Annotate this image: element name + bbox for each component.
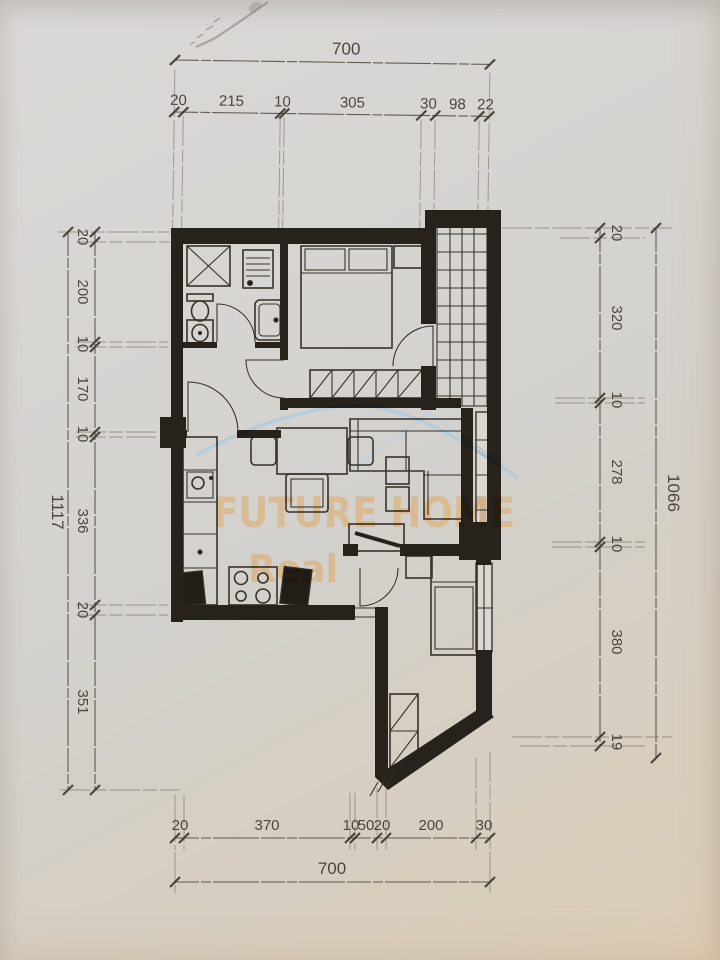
living-room-door xyxy=(188,382,238,432)
dim-label: 320 xyxy=(608,305,625,330)
balcony-tiles xyxy=(437,216,487,406)
dim-label: 305 xyxy=(340,94,365,111)
dim-label: 20 xyxy=(172,817,189,834)
dining-chair-right xyxy=(348,437,373,465)
dim-label: 20 xyxy=(608,225,625,242)
balcony-door xyxy=(393,326,433,366)
dim-label: 10 xyxy=(74,426,91,443)
dim-overall-label: 700 xyxy=(332,39,361,58)
dim-label: 336 xyxy=(74,508,91,533)
dim-label: 30 xyxy=(420,95,437,112)
scanned-floor-plan-photo: 700 20 215 10 305 30 98 22 1117 20 200 1… xyxy=(0,0,720,960)
pencil-scribble xyxy=(190,0,268,47)
dim-label: 351 xyxy=(74,689,91,714)
dim-overall-label: 1066 xyxy=(664,474,683,512)
dim-label: 215 xyxy=(219,93,244,110)
vanity-sink xyxy=(255,300,284,340)
dining-chair-left xyxy=(251,437,276,465)
bathroom-shower xyxy=(187,246,230,286)
dim-label: 10 xyxy=(608,392,625,409)
kitchen-sink xyxy=(187,472,213,498)
bedside-table xyxy=(406,556,432,578)
bedroom2-door xyxy=(360,568,398,606)
watermark-brand: FUTURE HOME xyxy=(213,488,515,537)
dim-label: 20 xyxy=(74,229,91,246)
dim-label: 19 xyxy=(608,734,625,751)
floor-plan-drawing: 700 20 215 10 305 30 98 22 1117 20 200 1… xyxy=(0,0,720,960)
bathroom-door xyxy=(217,304,255,342)
dim-overall-label: 1117 xyxy=(48,494,67,529)
dim-label: 380 xyxy=(608,629,625,654)
bedroom-door xyxy=(246,360,284,398)
dim-label: 30 xyxy=(476,817,493,834)
toilet xyxy=(187,294,213,321)
double-bed xyxy=(301,246,392,348)
dimension-chain-left: 1117 20 200 10 170 10 336 20 351 xyxy=(48,227,180,795)
dim-overall-label: 700 xyxy=(318,859,346,878)
dim-label: 10 xyxy=(608,536,625,553)
passage-threshold xyxy=(355,608,377,617)
dining-table xyxy=(277,428,347,474)
dimension-chain-right: 1066 20 320 10 278 10 380 19 xyxy=(502,223,683,763)
wardrobe xyxy=(310,370,422,398)
dim-label: 10 xyxy=(74,336,91,353)
dim-label: 20 xyxy=(374,817,391,834)
dim-label: 50 xyxy=(358,817,375,834)
dim-label: 370 xyxy=(254,817,279,834)
dim-label: 98 xyxy=(449,96,466,113)
single-bed xyxy=(431,555,477,655)
washing-machine xyxy=(243,250,273,288)
outer-wall-bottom xyxy=(171,605,355,620)
dim-label: 10 xyxy=(274,93,291,110)
dim-label: 22 xyxy=(477,96,494,113)
outer-wall-top xyxy=(171,228,430,244)
dim-label: 200 xyxy=(74,279,91,304)
dim-label: 278 xyxy=(608,459,625,484)
dim-label: 200 xyxy=(418,817,443,834)
dim-label: 20 xyxy=(74,602,91,619)
dim-label: 170 xyxy=(74,376,91,401)
watermark-tagline: Real xyxy=(248,547,338,591)
window-lower-right xyxy=(476,563,492,652)
dim-label: 20 xyxy=(170,92,187,109)
dimension-chain-bottom: 20 370 10 50 20 200 30 700 xyxy=(170,752,495,893)
